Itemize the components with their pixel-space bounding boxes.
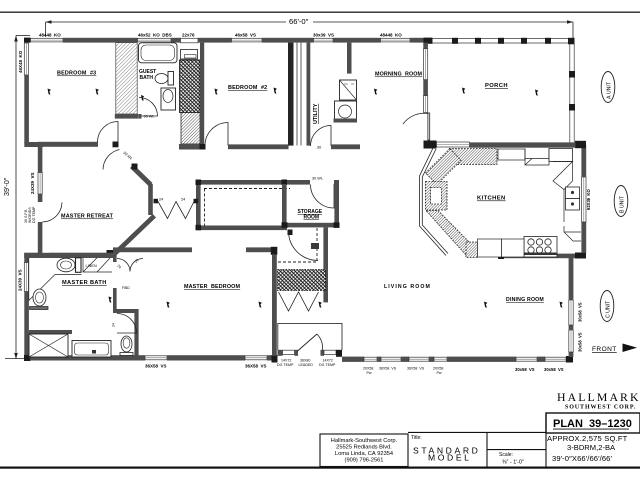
svg-text:66′-0″: 66′-0″ xyxy=(289,17,309,26)
svg-text:36X80: 36X80 xyxy=(300,359,310,363)
svg-text:DG TEMP: DG TEMP xyxy=(277,363,294,367)
svg-text:PLAN 39–1230: PLAN 39–1230 xyxy=(553,418,632,430)
svg-text:24: 24 xyxy=(159,198,163,202)
svg-text:ROOM: ROOM xyxy=(304,215,320,221)
svg-text:46x52 KO DBS: 46x52 KO DBS xyxy=(138,33,172,38)
svg-text:30x58 VS: 30x58 VS xyxy=(544,367,564,372)
svg-text:20X58: 20X58 xyxy=(433,367,443,371)
svg-text:36X58 VS: 36X58 VS xyxy=(145,364,167,369)
svg-text:30 WL: 30 WL xyxy=(312,177,323,181)
svg-text:FIBD: FIBD xyxy=(122,286,130,290)
svg-text:62X36 KO: 62X36 KO xyxy=(586,189,591,210)
svg-text:KITCHEN: KITCHEN xyxy=(477,196,506,202)
svg-text:C UNIT: C UNIT xyxy=(606,300,612,318)
svg-text:14X72: 14X72 xyxy=(281,359,291,363)
svg-text:APPROX.2,575 SQ.FT: APPROX.2,575 SQ.FT xyxy=(547,434,628,443)
svg-text:Pw: Pw xyxy=(367,371,372,375)
svg-text:Scale:: Scale: xyxy=(499,452,513,458)
svg-text:39′-0″X66′/66′/66′: 39′-0″X66′/66′/66′ xyxy=(552,454,612,463)
svg-text:Title:: Title: xyxy=(411,435,422,441)
svg-text:MORNING ROOM: MORNING ROOM xyxy=(375,72,423,78)
svg-text:Loma Linda, CA 92354: Loma Linda, CA 92354 xyxy=(335,451,393,457)
svg-text:36X58 VS: 36X58 VS xyxy=(245,364,267,369)
svg-text:BATH: BATH xyxy=(140,75,154,81)
svg-text:LIVING ROOM: LIVING ROOM xyxy=(384,284,431,290)
svg-text:20X58: 20X58 xyxy=(363,367,373,371)
svg-text:DG TEMP: DG TEMP xyxy=(32,206,36,223)
svg-text:25525 Redlands Blvd.: 25525 Redlands Blvd. xyxy=(336,445,392,451)
svg-text:(909) 796-2561: (909) 796-2561 xyxy=(345,458,384,464)
svg-text:24X39 VS: 24X39 VS xyxy=(30,172,35,194)
svg-text:LEADED: LEADED xyxy=(299,363,314,367)
svg-text:39′-0″: 39′-0″ xyxy=(2,177,11,196)
svg-text:22x76: 22x76 xyxy=(182,33,195,38)
svg-text:46x58 VS: 46x58 VS xyxy=(235,33,256,38)
svg-text:SOUTHWEST CORP.: SOUTHWEST CORP. xyxy=(565,405,636,411)
svg-text:48448 KO: 48448 KO xyxy=(380,33,402,38)
svg-text:MASTER BATH: MASTER BATH xyxy=(62,280,107,286)
svg-text:UTILITY: UTILITY xyxy=(313,103,319,124)
svg-text:BEDROOM #3: BEDROOM #3 xyxy=(57,71,96,77)
svg-text:30x39 VS: 30x39 VS xyxy=(313,33,334,38)
svg-text:MASTER BEDROOM: MASTER BEDROOM xyxy=(184,284,241,290)
svg-text:Pw: Pw xyxy=(437,371,442,375)
svg-text:30 WL: 30 WL xyxy=(144,115,155,119)
svg-text:24: 24 xyxy=(181,198,185,202)
svg-text:HALLMARK: HALLMARK xyxy=(557,390,640,404)
svg-text:3-BDRM,2-BA: 3-BDRM,2-BA xyxy=(567,443,616,452)
svg-text:46X48 KO: 46X48 KO xyxy=(18,50,23,73)
svg-text:FRONT: FRONT xyxy=(592,346,617,353)
svg-text:30x58 VS: 30x58 VS xyxy=(515,367,535,372)
svg-text:48448 KO: 48448 KO xyxy=(39,33,61,38)
svg-text:30x58 VS: 30x58 VS xyxy=(578,302,583,322)
svg-text:MODEL: MODEL xyxy=(428,453,472,463)
svg-text:24: 24 xyxy=(112,323,116,327)
svg-text:36X58 VS: 36X58 VS xyxy=(379,367,397,371)
svg-text:MASTER RETREAT: MASTER RETREAT xyxy=(61,214,114,220)
svg-text:PORCH: PORCH xyxy=(485,83,508,89)
svg-text:14X72: 14X72 xyxy=(323,359,333,363)
svg-text:BEDROOM #2: BEDROOM #2 xyxy=(228,85,267,91)
svg-text:DINING ROOM: DINING ROOM xyxy=(506,297,544,303)
svg-text:.30: .30 xyxy=(316,146,321,150)
svg-text:24X39 VS: 24X39 VS xyxy=(18,269,23,291)
svg-text:36X58 VS: 36X58 VS xyxy=(407,367,425,371)
svg-text:B UNIT: B UNIT xyxy=(620,195,626,213)
svg-text:A UNIT: A UNIT xyxy=(607,81,613,99)
svg-text:Hallmark-Southwest Corp.: Hallmark-Southwest Corp. xyxy=(331,438,398,444)
svg-text:30x58 VS: 30x58 VS xyxy=(578,332,583,352)
svg-text:DG TEMP: DG TEMP xyxy=(319,363,336,367)
svg-text:⅜″ - 1′-0″: ⅜″ - 1′-0″ xyxy=(502,460,524,466)
